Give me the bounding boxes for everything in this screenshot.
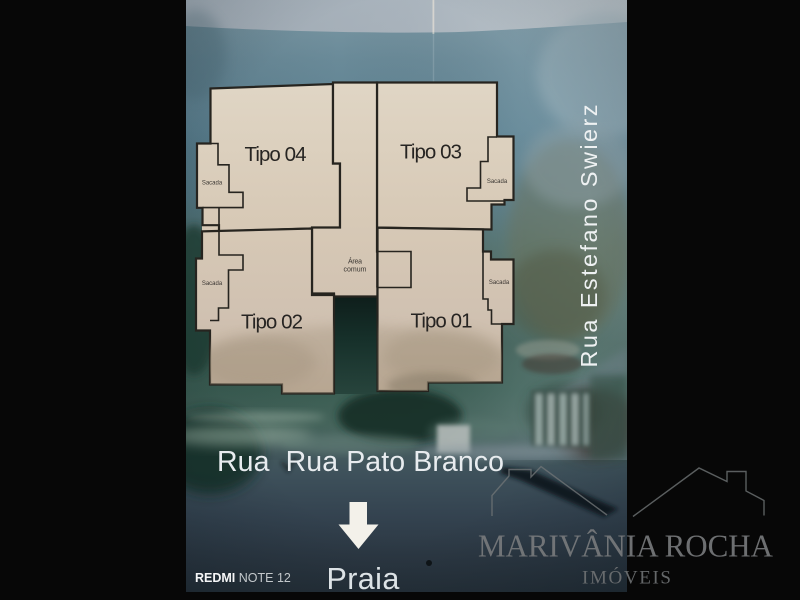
svg-text:Sacada: Sacada bbox=[202, 181, 223, 187]
svg-text:Área: Área bbox=[348, 257, 362, 266]
svg-text:MARIVÂNIA ROCHA: MARIVÂNIA ROCHA bbox=[478, 529, 773, 564]
svg-text:Tipo 04: Tipo 04 bbox=[245, 143, 307, 166]
svg-text:Praia: Praia bbox=[327, 562, 400, 596]
svg-text:REDMI NOTE 12: REDMI NOTE 12 bbox=[195, 571, 291, 585]
svg-text:Tipo 01: Tipo 01 bbox=[411, 310, 473, 333]
svg-text:Sacada: Sacada bbox=[489, 280, 510, 286]
svg-text:Rua Rua Pato Branco: Rua Rua Pato Branco bbox=[217, 446, 504, 478]
svg-text:Sacada: Sacada bbox=[202, 281, 223, 287]
svg-text:Tipo 03: Tipo 03 bbox=[400, 141, 462, 164]
svg-text:Sacada: Sacada bbox=[487, 179, 508, 185]
svg-text:comum: comum bbox=[344, 267, 367, 274]
svg-text:Tipo 02: Tipo 02 bbox=[241, 311, 303, 334]
svg-text:IMÓVEIS: IMÓVEIS bbox=[582, 567, 671, 589]
